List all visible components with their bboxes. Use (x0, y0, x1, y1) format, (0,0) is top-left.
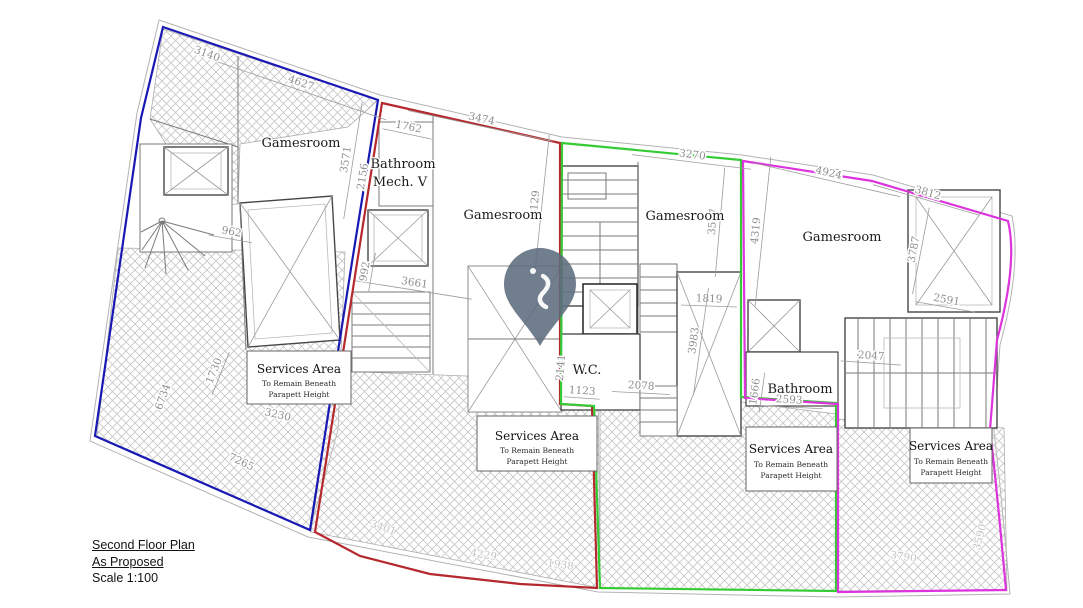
services-area-title: Services Area (257, 362, 341, 376)
dimension: 2141 (554, 354, 568, 382)
stair-unit4 (845, 318, 997, 428)
room-label: Gamesroom (802, 230, 881, 245)
room-label: Mech. V (373, 175, 428, 190)
services-area-note-line: Parapett Height (921, 468, 982, 477)
dimension: 3474 (408, 98, 555, 141)
room-label: Bathroom (767, 382, 832, 397)
services-area-title: Services Area (749, 442, 833, 456)
services-area-note-line: To Remain Beneath (262, 379, 336, 388)
services-area-note-line: To Remain Beneath (914, 457, 988, 466)
room-label: Gamesroom (463, 208, 542, 223)
services-area-title: Services Area (495, 429, 579, 443)
services-area-box-1: Services Area To Remain Beneath Parapett… (247, 351, 351, 404)
floor-plan-canvas: 4627314017623474327049243812357121564129… (0, 0, 1083, 608)
services-area-note-line: Parapett Height (507, 457, 568, 466)
dimension-label: 3270 (678, 147, 706, 162)
dimension: 1123 (564, 384, 601, 399)
dimension: 1762 (383, 116, 435, 139)
room-label: Gamesroom (261, 136, 340, 151)
services-area-note-line: To Remain Beneath (754, 460, 828, 469)
services-area-note-line: Parapett Height (761, 471, 822, 480)
services-area-box-2: Services Area To Remain Beneath Parapett… (477, 416, 597, 471)
dimension-label: 1819 (696, 293, 723, 306)
dimension-label: 2047 (857, 349, 885, 363)
dimension: 4319 (742, 155, 771, 306)
services-area-note-line: Parapett Height (269, 390, 330, 399)
services-area-note-line: To Remain Beneath (500, 446, 574, 455)
room-label: Bathroom (370, 157, 435, 172)
dimension-label: 4924 (814, 164, 843, 182)
dimension: 4924 (754, 150, 903, 196)
dimension-label: 4319 (749, 217, 764, 245)
services-area-title: Services Area (909, 439, 993, 453)
floor-plan-viewer: 4627314017623474327049243812357121564129… (0, 0, 1083, 608)
services-area-box-4: Services Area To Remain Beneath Parapett… (909, 428, 993, 483)
plan-title: Second Floor Plan (92, 537, 195, 554)
room-label: Gamesroom (645, 209, 724, 224)
title-block: Second Floor Plan As Proposed Scale 1:10… (92, 537, 195, 587)
dimension-label: 1762 (394, 118, 423, 135)
dimension-label: 3474 (467, 110, 496, 127)
stair-unit2 (352, 292, 430, 372)
room-label: W.C. (573, 363, 602, 378)
dimension-label: 992 (357, 261, 372, 283)
dimension-label: 1123 (568, 384, 596, 398)
dimension-label: 2078 (627, 379, 654, 392)
plan-subtitle: As Proposed (92, 554, 195, 571)
dimension-label: 2141 (554, 354, 568, 382)
services-area-box-3: Services Area To Remain Beneath Parapett… (746, 427, 837, 491)
plan-scale: Scale 1:100 (92, 570, 195, 587)
